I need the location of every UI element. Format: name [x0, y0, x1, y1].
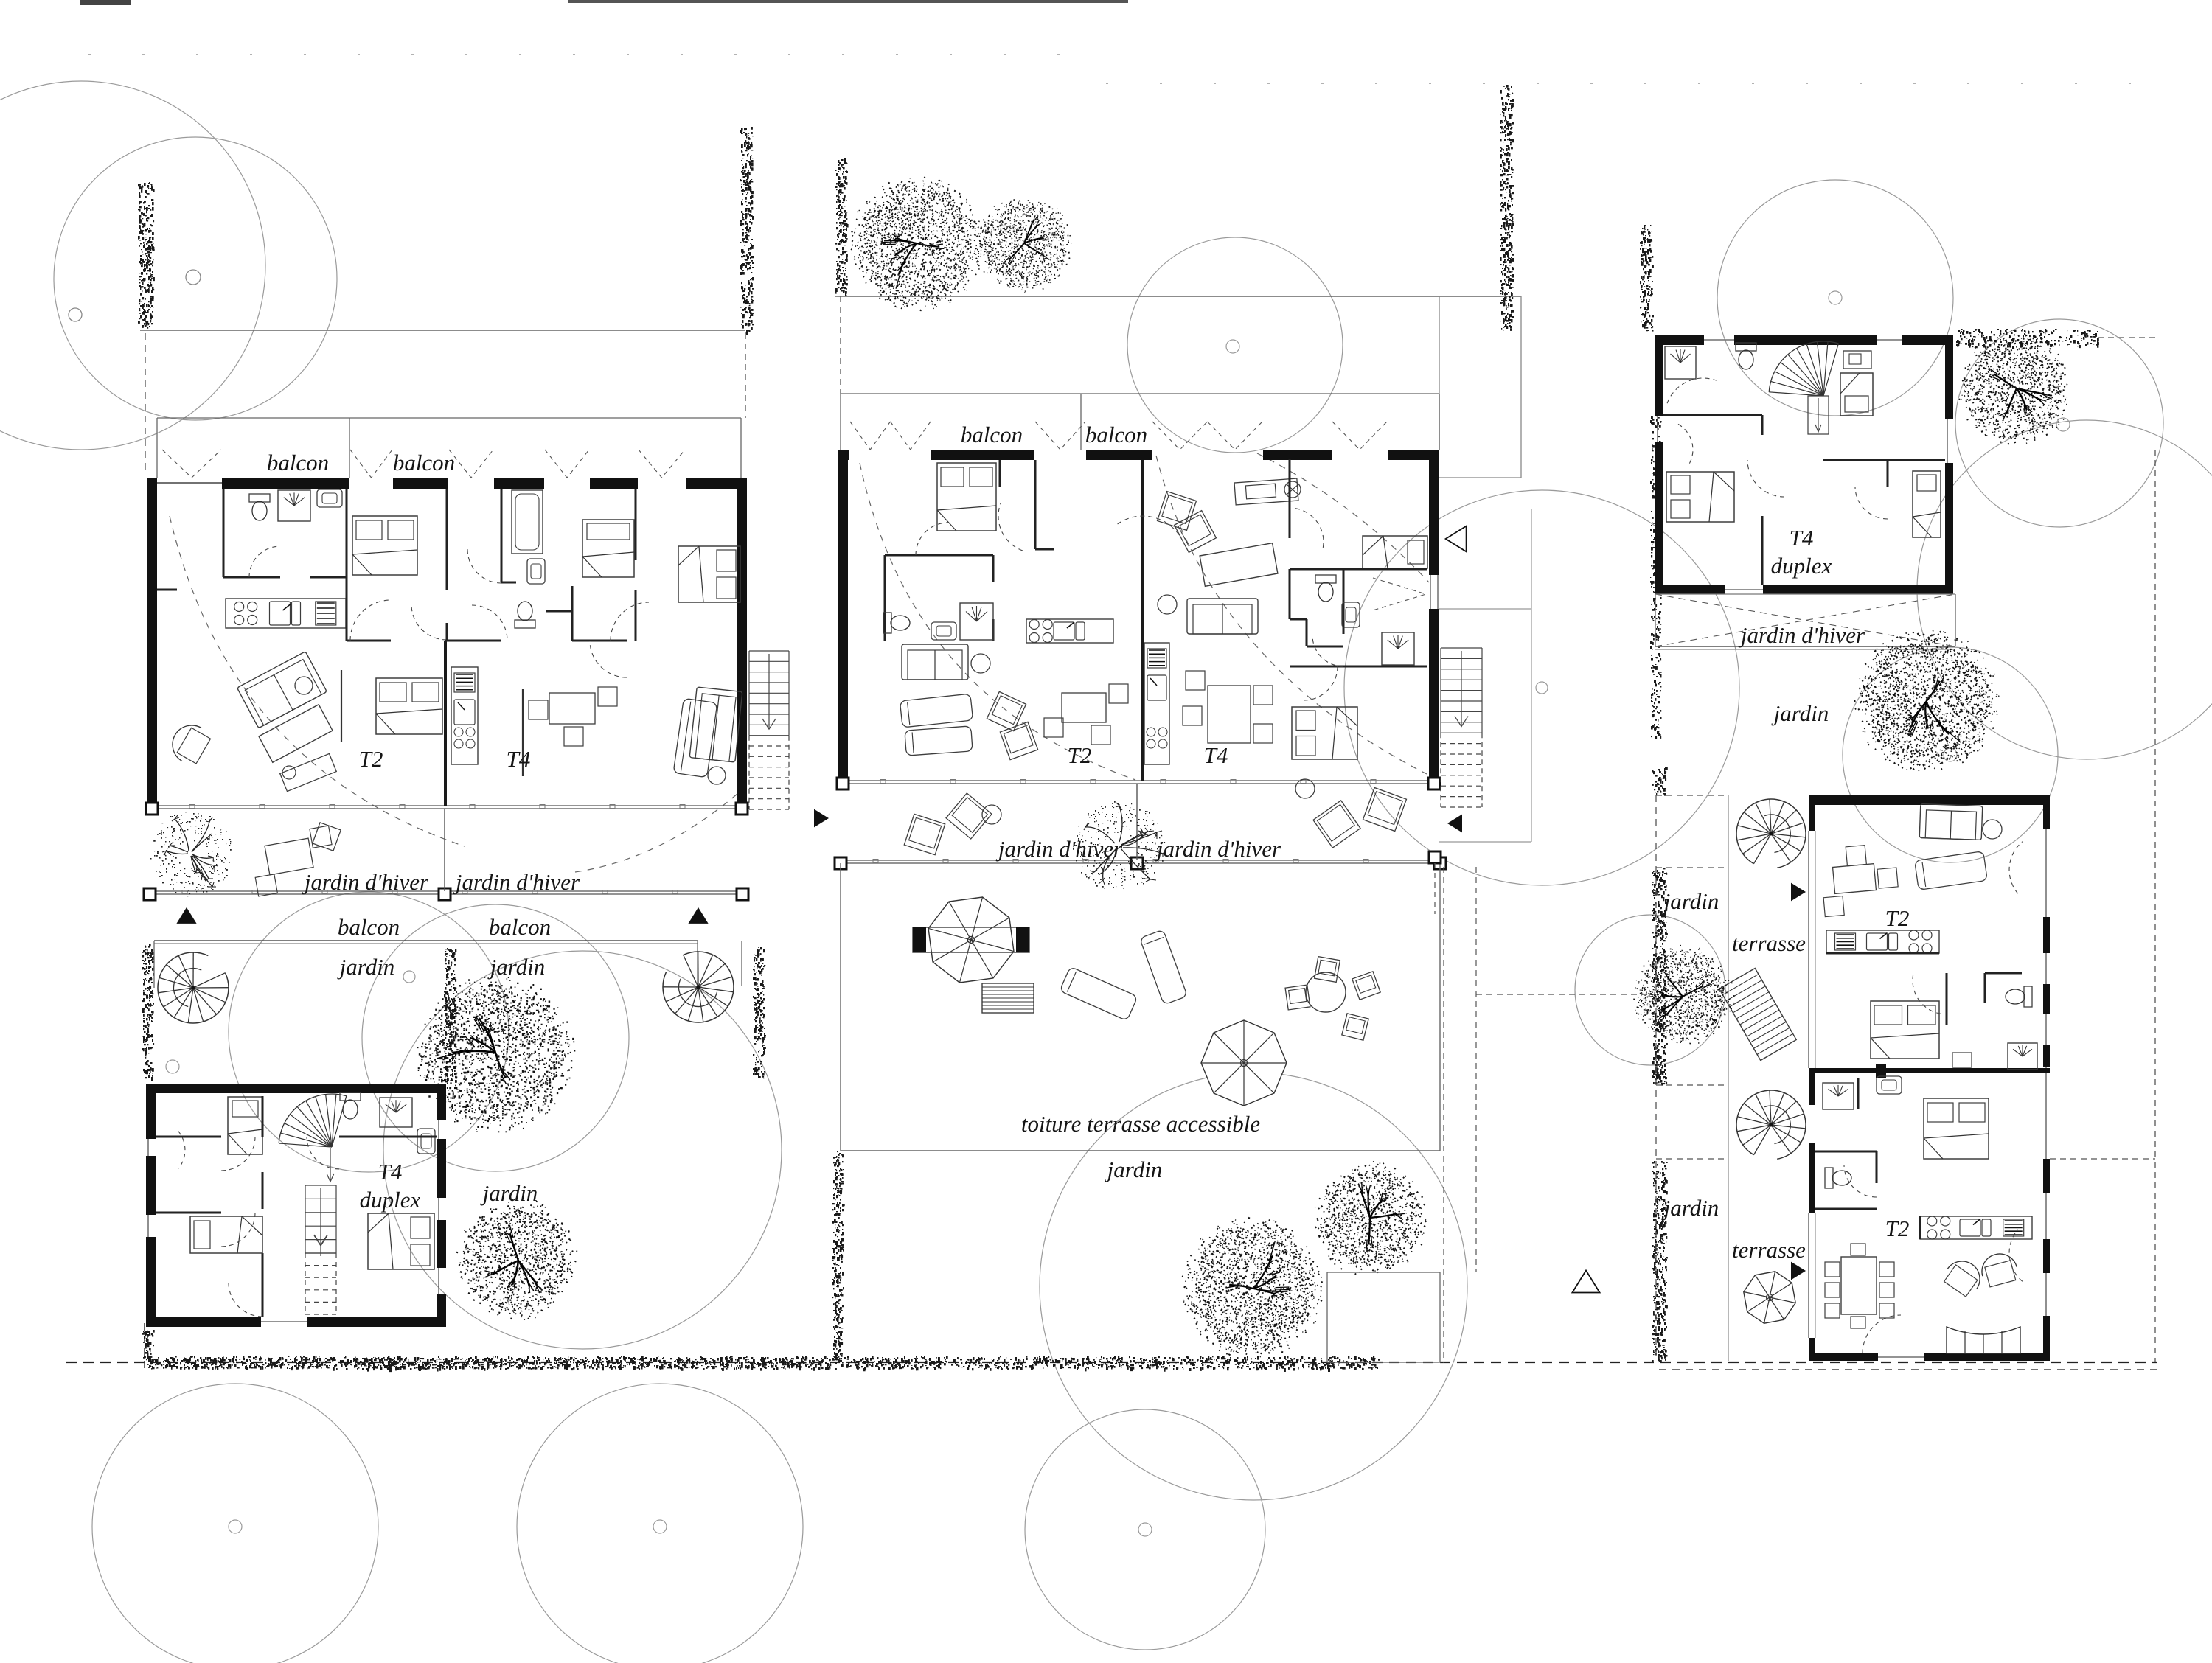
svg-text:T4: T4 — [1790, 525, 1814, 551]
svg-text:jardin: jardin — [1661, 1195, 1719, 1221]
svg-text:T4: T4 — [1204, 742, 1228, 768]
svg-text:balcon: balcon — [267, 450, 329, 475]
svg-text:jardin d'hiver: jardin d'hiver — [1738, 622, 1865, 648]
svg-text:T4: T4 — [378, 1159, 403, 1185]
svg-text:balcon: balcon — [489, 914, 551, 940]
svg-text:jardin: jardin — [487, 954, 546, 980]
svg-text:jardin d'hiver: jardin d'hiver — [1154, 836, 1281, 862]
svg-text:jardin: jardin — [1105, 1157, 1163, 1182]
svg-text:jardin: jardin — [1771, 700, 1829, 726]
svg-text:balcon: balcon — [338, 914, 400, 940]
svg-text:balcon: balcon — [1085, 422, 1147, 447]
svg-text:T2: T2 — [359, 746, 383, 772]
svg-text:jardin d'hiver: jardin d'hiver — [995, 836, 1123, 862]
svg-text:terrasse: terrasse — [1732, 1237, 1806, 1263]
svg-text:T2: T2 — [1068, 742, 1092, 768]
svg-text:duplex: duplex — [360, 1187, 421, 1213]
svg-text:toiture terrasse accessible: toiture terrasse accessible — [1021, 1111, 1261, 1137]
svg-text:balcon: balcon — [393, 450, 455, 475]
svg-text:jardin: jardin — [337, 954, 395, 980]
svg-text:duplex: duplex — [1771, 553, 1832, 579]
svg-text:T4: T4 — [507, 746, 531, 772]
svg-text:T2: T2 — [1885, 905, 1910, 931]
svg-text:jardin d'hiver: jardin d'hiver — [453, 869, 580, 895]
svg-text:terrasse: terrasse — [1732, 930, 1806, 956]
svg-text:balcon: balcon — [961, 422, 1023, 447]
svg-text:T2: T2 — [1885, 1216, 1910, 1241]
svg-text:jardin: jardin — [1661, 888, 1719, 914]
svg-text:jardin d'hiver: jardin d'hiver — [302, 869, 429, 895]
